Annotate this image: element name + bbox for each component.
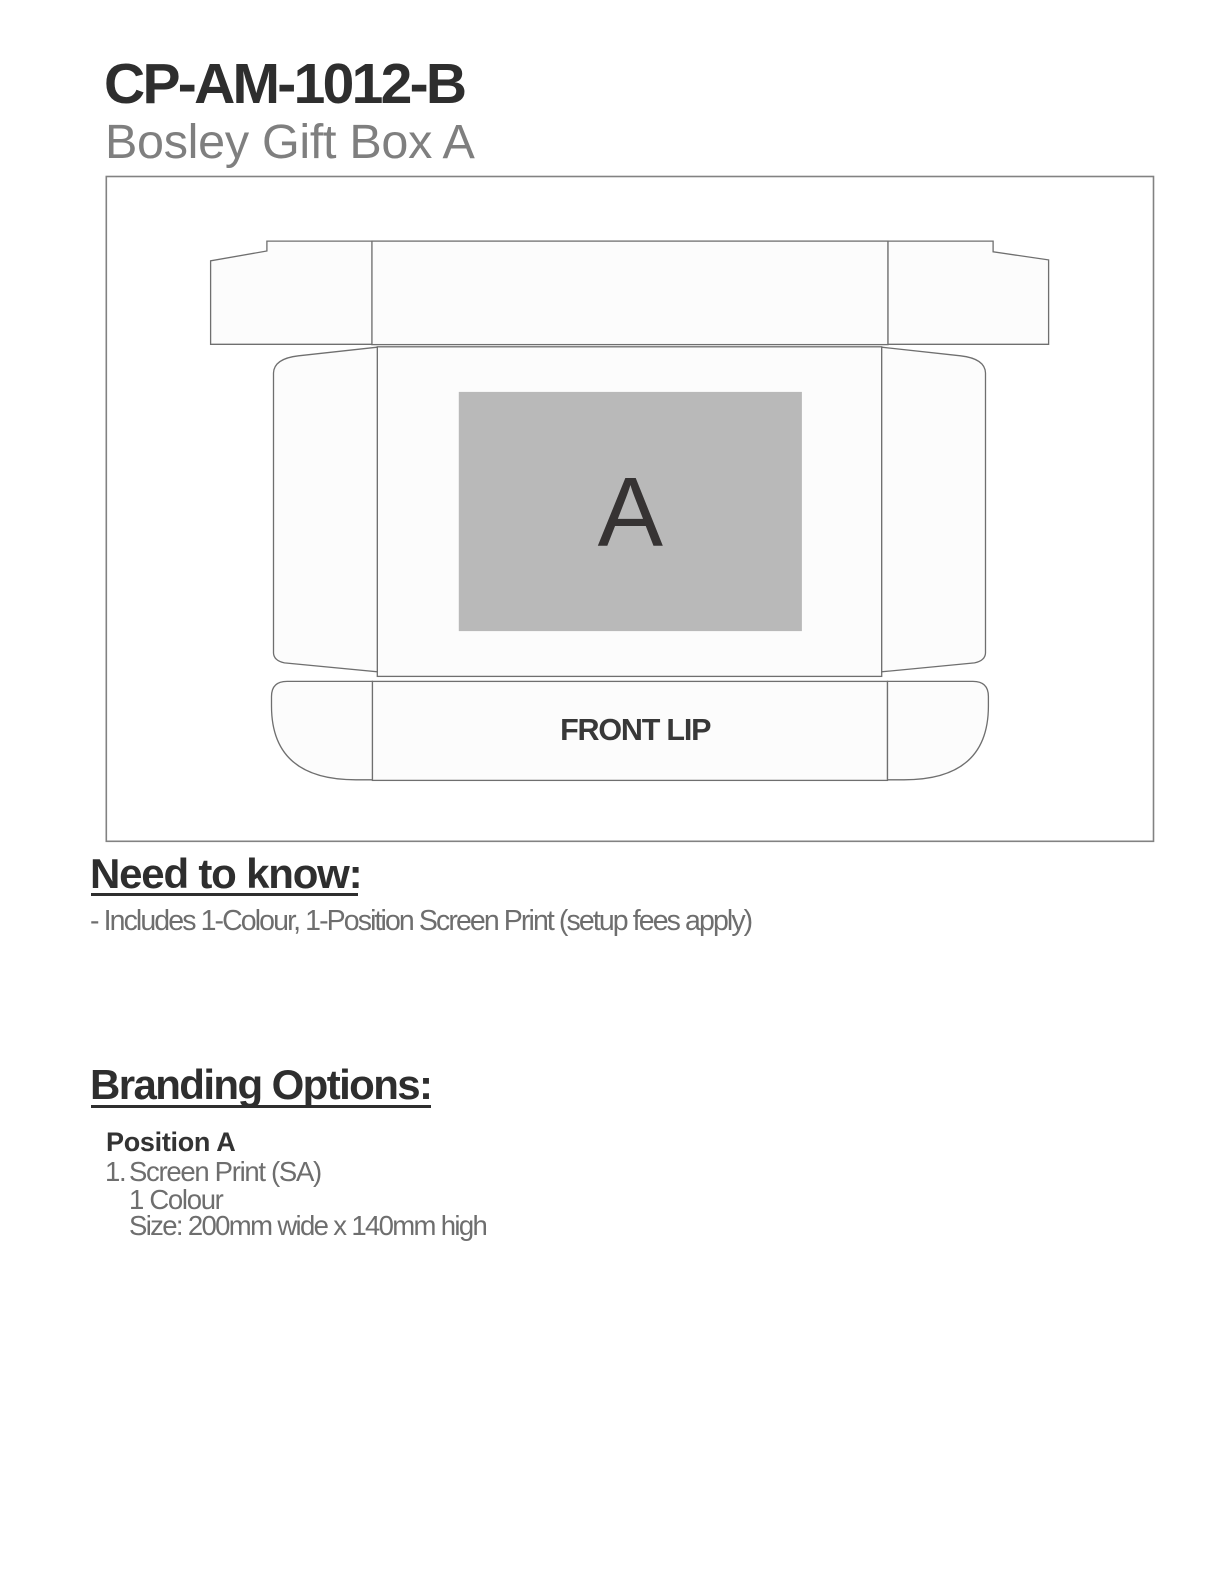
svg-text:A: A	[598, 457, 664, 567]
svg-text:FRONT LIP: FRONT LIP	[560, 713, 711, 747]
